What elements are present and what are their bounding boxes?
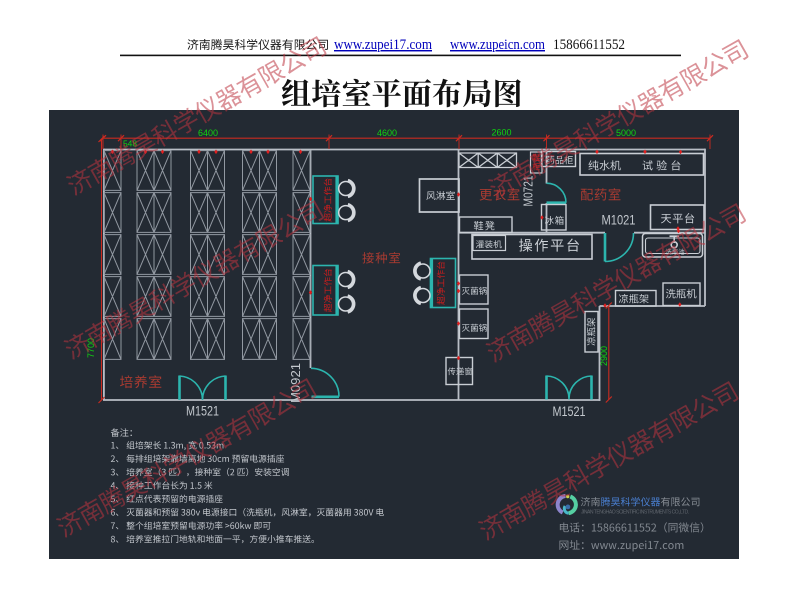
svg-text:JINAN TENGHAO SCIENTIFIC INSTR: JINAN TENGHAO SCIENTIFIC INSTRUMENTS CO.… bbox=[581, 510, 689, 516]
svg-text:6400: 6400 bbox=[198, 128, 218, 138]
svg-text:www.zupeicn.com: www.zupeicn.com bbox=[450, 37, 546, 53]
svg-text:4600: 4600 bbox=[377, 128, 397, 138]
svg-text:M1521: M1521 bbox=[553, 403, 586, 419]
svg-text:15866611552: 15866611552 bbox=[553, 37, 625, 53]
svg-text:2900: 2900 bbox=[599, 346, 609, 366]
svg-text:M1021: M1021 bbox=[602, 212, 636, 228]
svg-text:2600: 2600 bbox=[491, 128, 511, 138]
svg-text:5000: 5000 bbox=[616, 128, 636, 138]
svg-text:www.zupei17.com: www.zupei17.com bbox=[334, 37, 433, 53]
svg-text:M0721: M0721 bbox=[522, 175, 536, 206]
svg-text:M1521: M1521 bbox=[186, 403, 219, 419]
